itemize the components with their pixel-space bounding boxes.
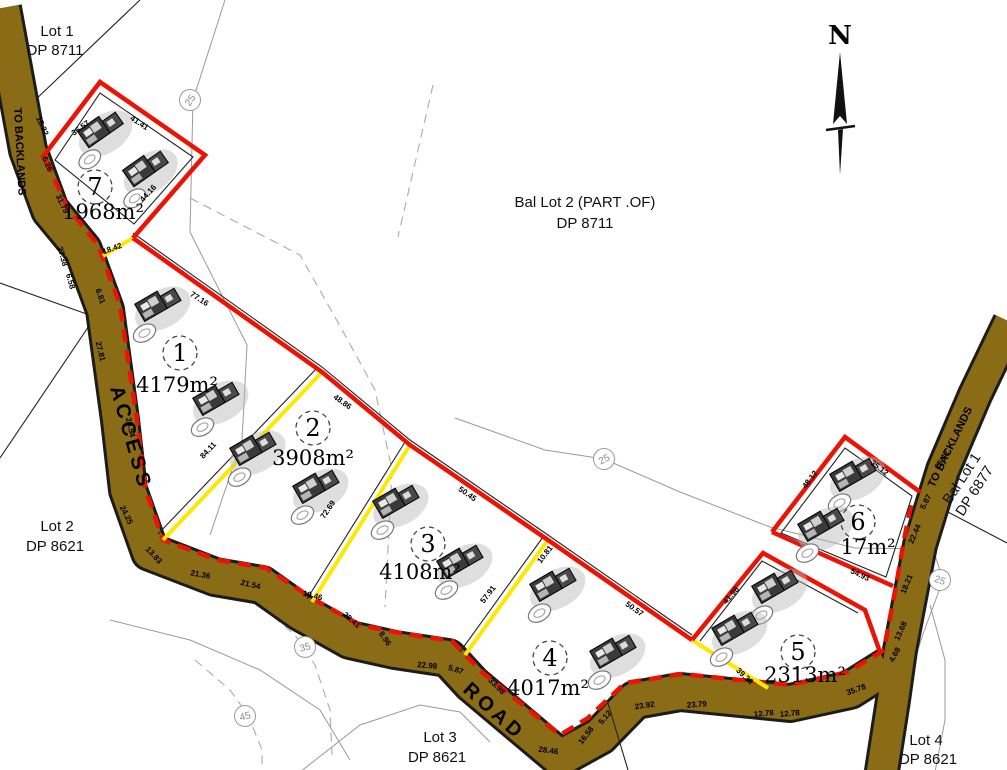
label-lot2-name: Lot 2	[40, 518, 73, 535]
house-icon	[514, 557, 594, 626]
parcel-4-number: 4	[542, 644, 557, 672]
parcel-7-number: 7	[87, 173, 102, 201]
dim-label: 22.98	[417, 660, 438, 671]
label-lot1-name: Lot 1	[40, 23, 73, 40]
north-arrow-spear	[833, 52, 847, 124]
label-lot1-dp: DP 8711	[27, 42, 84, 59]
dim-label: 57.91	[478, 583, 498, 605]
parcel-4-area: 4017m²	[507, 676, 589, 700]
parcel-labels: 1 4179m² 2 3908m² 3 4108m² 4 4017m² 5 23…	[62, 170, 895, 700]
dim-label: 84.11	[198, 440, 218, 461]
label-lot4-dp: DP 8621	[899, 751, 957, 768]
north-arrow: N	[826, 21, 855, 175]
plan-canvas: 1 4179m² 2 3908m² 3 4108m² 4 4017m² 5 23…	[0, 0, 1007, 770]
boundary-line-lot2-b	[0, 317, 95, 458]
contour-value-labels: 25 25 25 35 45	[175, 85, 953, 728]
parcel-1-area: 4179m²	[136, 373, 218, 397]
parcel-2-number: 2	[305, 414, 320, 442]
dim-label: 12.78	[753, 708, 774, 719]
parcel-1-number: 1	[172, 339, 187, 367]
house-icon	[119, 277, 199, 346]
contour-label-25-mid: 25	[590, 445, 618, 473]
dim-label: 41.98	[721, 584, 741, 606]
label-lot3-name: Lot 3	[423, 729, 456, 746]
dashed-feature-line-1	[398, 85, 433, 237]
subdivision-plan: 1 4179m² 2 3908m² 3 4108m² 4 4017m² 5 23…	[0, 0, 1007, 770]
dim-label: 12.78	[779, 708, 800, 719]
north-arrow-tail	[838, 129, 843, 175]
dim-label: 23.79	[687, 699, 708, 709]
parcel-6-area: 17m²	[840, 535, 895, 559]
parcel-3-number: 3	[420, 530, 435, 558]
contour-label-25-west: 25	[175, 85, 204, 114]
label-bal-lot2-dp: DP 8711	[557, 215, 614, 232]
north-arrow-crossbar	[826, 126, 855, 130]
dimension-labels: 18.22 6.26 31.79 27.38 6.58 6.81 27.81 2…	[34, 114, 951, 757]
dim-label: 18.42	[101, 241, 123, 256]
contour-label-45: 45	[232, 703, 258, 729]
parcel-6-number: 6	[850, 508, 865, 536]
dim-label: 10.81	[535, 543, 555, 565]
label-lot2-dp: DP 8621	[26, 538, 84, 555]
label-lot4-name: Lot 4	[909, 732, 942, 749]
parcel-2-area: 3908m²	[272, 446, 354, 470]
parcel-3-area: 4108m²	[379, 560, 461, 584]
road-backlands	[880, 322, 1007, 770]
parcel-5-area: 2313m²	[764, 663, 846, 687]
parcel-7-area: 1968m²	[62, 200, 144, 224]
parcel-5-number: 5	[790, 638, 805, 666]
label-lot3-dp: DP 8621	[408, 749, 466, 766]
north-label: N	[828, 21, 852, 51]
label-bal-lot2-name: Bal Lot 2 (PART .OF)	[515, 194, 656, 211]
road-name-labels: ACCESS ROAD TO BACKLANDS TO BACKLANDS	[11, 108, 975, 745]
